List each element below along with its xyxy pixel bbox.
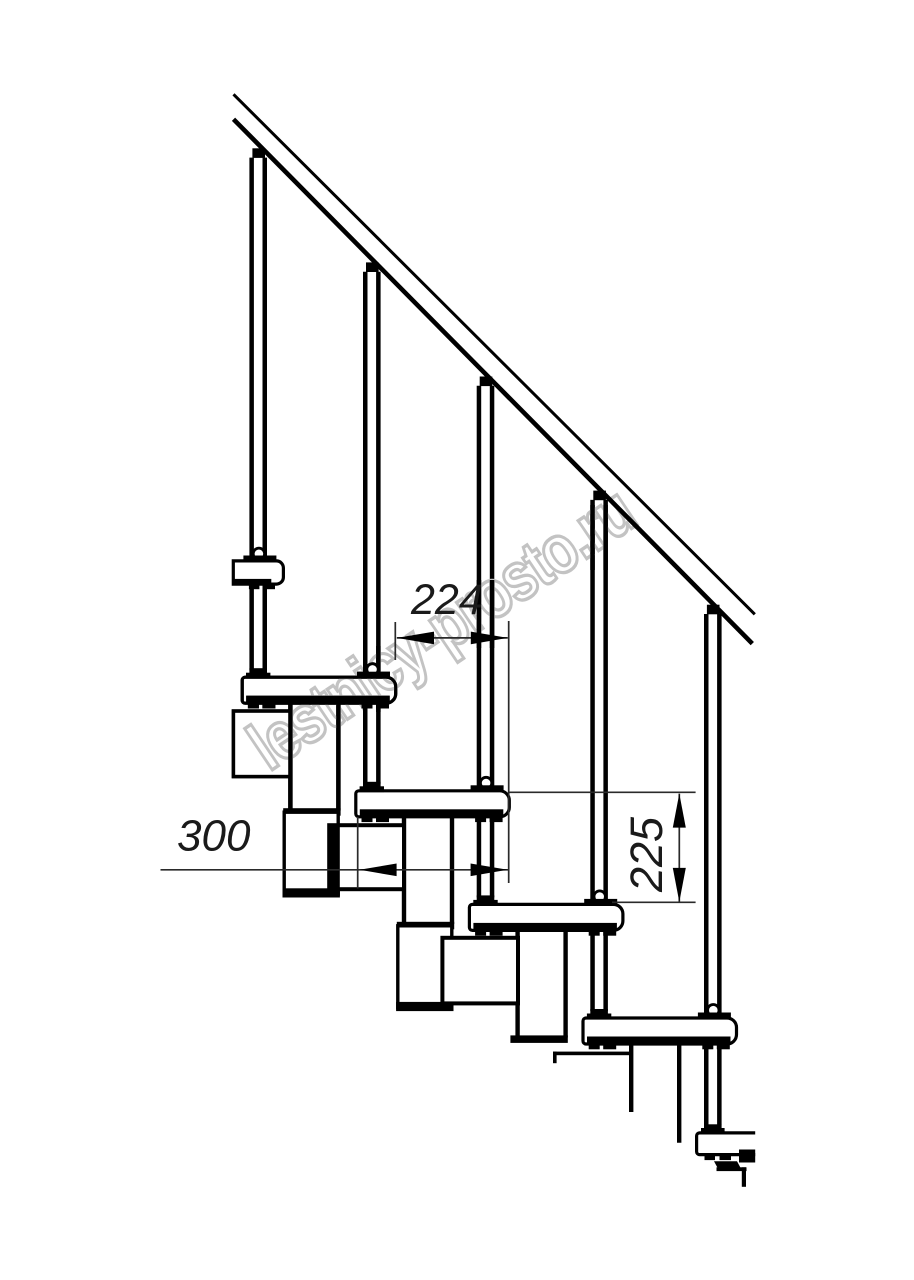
svg-text:224: 224 (410, 576, 483, 624)
svg-text:225: 225 (621, 816, 672, 893)
svg-text:300: 300 (177, 812, 251, 861)
